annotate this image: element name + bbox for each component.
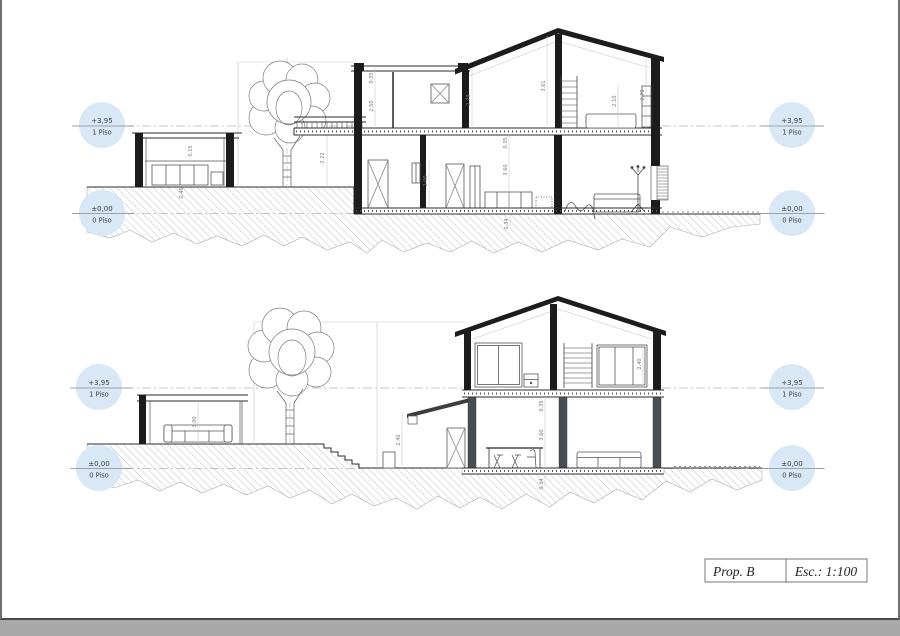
marker-s2-right-000: ±0,00 0 Piso [760, 445, 824, 491]
dim-label: 0.46 [179, 187, 185, 198]
level-value: +3,95 [781, 379, 802, 387]
level-label: 0 Piso [89, 472, 108, 480]
level-label: 1 Piso [782, 129, 801, 137]
dim-label: 3.60 [539, 429, 545, 440]
wall [464, 331, 471, 390]
main-house-bottom: 2.40 2.40 0.35 3.60 0.34 [383, 296, 666, 490]
nightstand [524, 374, 538, 387]
level-label: 1 Piso [782, 391, 801, 399]
dim-label: 2.10 [612, 95, 618, 106]
drawing-sheet: 0.15 0.46 2.22 [0, 0, 900, 620]
title-scale: Esc.: 1:100 [794, 564, 857, 579]
title-proposal: Prop. B [712, 564, 755, 579]
wall [354, 64, 362, 214]
dim-label: 0.34 [539, 478, 545, 489]
tree-icon [248, 308, 334, 444]
door [447, 428, 465, 468]
drawing-canvas: 0.15 0.46 2.22 [2, 0, 900, 620]
level-value: +3,95 [91, 117, 112, 125]
gable-roof [455, 296, 666, 337]
level-label: 0 Piso [92, 217, 111, 225]
loft-ladder [561, 76, 577, 128]
dim-label: 2.00 [423, 175, 429, 186]
dim-label: 0.15 [188, 145, 194, 156]
marker-s1-left-395: +3,95 1 Piso [72, 102, 134, 148]
dim-label: 2.40 [637, 358, 643, 369]
door [446, 164, 464, 208]
flat-roof [351, 66, 470, 71]
level-label: 1 Piso [89, 391, 108, 399]
level-value: +3,95 [88, 379, 109, 387]
pavilion: 3.00 [137, 395, 248, 444]
level-label: 0 Piso [782, 217, 801, 225]
dim-label: 2.79 [466, 94, 472, 105]
marker-s1-right-000: ±0,00 0 Piso [760, 190, 824, 236]
dim-label: 3.61 [541, 80, 547, 91]
dim-label: 0.35 [369, 72, 375, 83]
marker-s2-left-395: +3,95 1 Piso [70, 364, 132, 410]
upper-window [431, 84, 449, 103]
level-label: 0 Piso [782, 472, 801, 480]
door-leaf [470, 166, 480, 208]
dim-label: 2.22 [320, 152, 326, 163]
dim-label: 3.00 [192, 416, 198, 427]
section-bottom: 3.00 [87, 296, 762, 509]
stairs [564, 343, 592, 388]
wall-cabinet [412, 163, 420, 183]
sliding-window [475, 343, 522, 387]
dim-label: 3.60 [503, 164, 509, 175]
column [559, 397, 567, 468]
sofa [577, 452, 641, 468]
partition [554, 135, 562, 214]
upper-slab [462, 390, 664, 397]
wall [651, 56, 660, 166]
upper-slab [294, 128, 662, 135]
level-value: ±0,00 [88, 460, 109, 468]
planter [383, 452, 395, 468]
radiator [657, 166, 668, 200]
dim-label: 0.35 [539, 400, 545, 411]
level-value: ±0,00 [781, 205, 802, 213]
title-block: Prop. B Esc.: 1:100 [705, 559, 867, 582]
kitchen-counter [485, 192, 552, 208]
level-value: ±0,00 [91, 205, 112, 213]
marker-s1-right-395: +3,95 1 Piso [760, 102, 824, 148]
entry-canopy [407, 398, 470, 424]
level-label: 1 Piso [92, 129, 111, 137]
dim-label: 0.35 [503, 137, 509, 148]
column [468, 397, 476, 468]
wall [653, 332, 661, 390]
bed [586, 114, 636, 128]
level-value: +3,95 [781, 117, 802, 125]
door [368, 160, 388, 208]
ground-slab [462, 468, 664, 474]
outbuilding-cabinet [152, 165, 223, 185]
dim-label: 0.34 [504, 218, 510, 229]
dim-label: 2.70 [640, 89, 646, 100]
marker-s2-right-395: +3,95 1 Piso [760, 364, 824, 410]
partition [420, 135, 426, 208]
level-value: ±0,00 [781, 460, 802, 468]
dim-label: 2.40 [396, 434, 402, 445]
column [653, 397, 661, 468]
dining-table [486, 448, 543, 468]
wall [550, 304, 557, 390]
dim-label: 2.50 [369, 100, 375, 111]
section-top: 0.15 0.46 2.22 [87, 28, 760, 253]
